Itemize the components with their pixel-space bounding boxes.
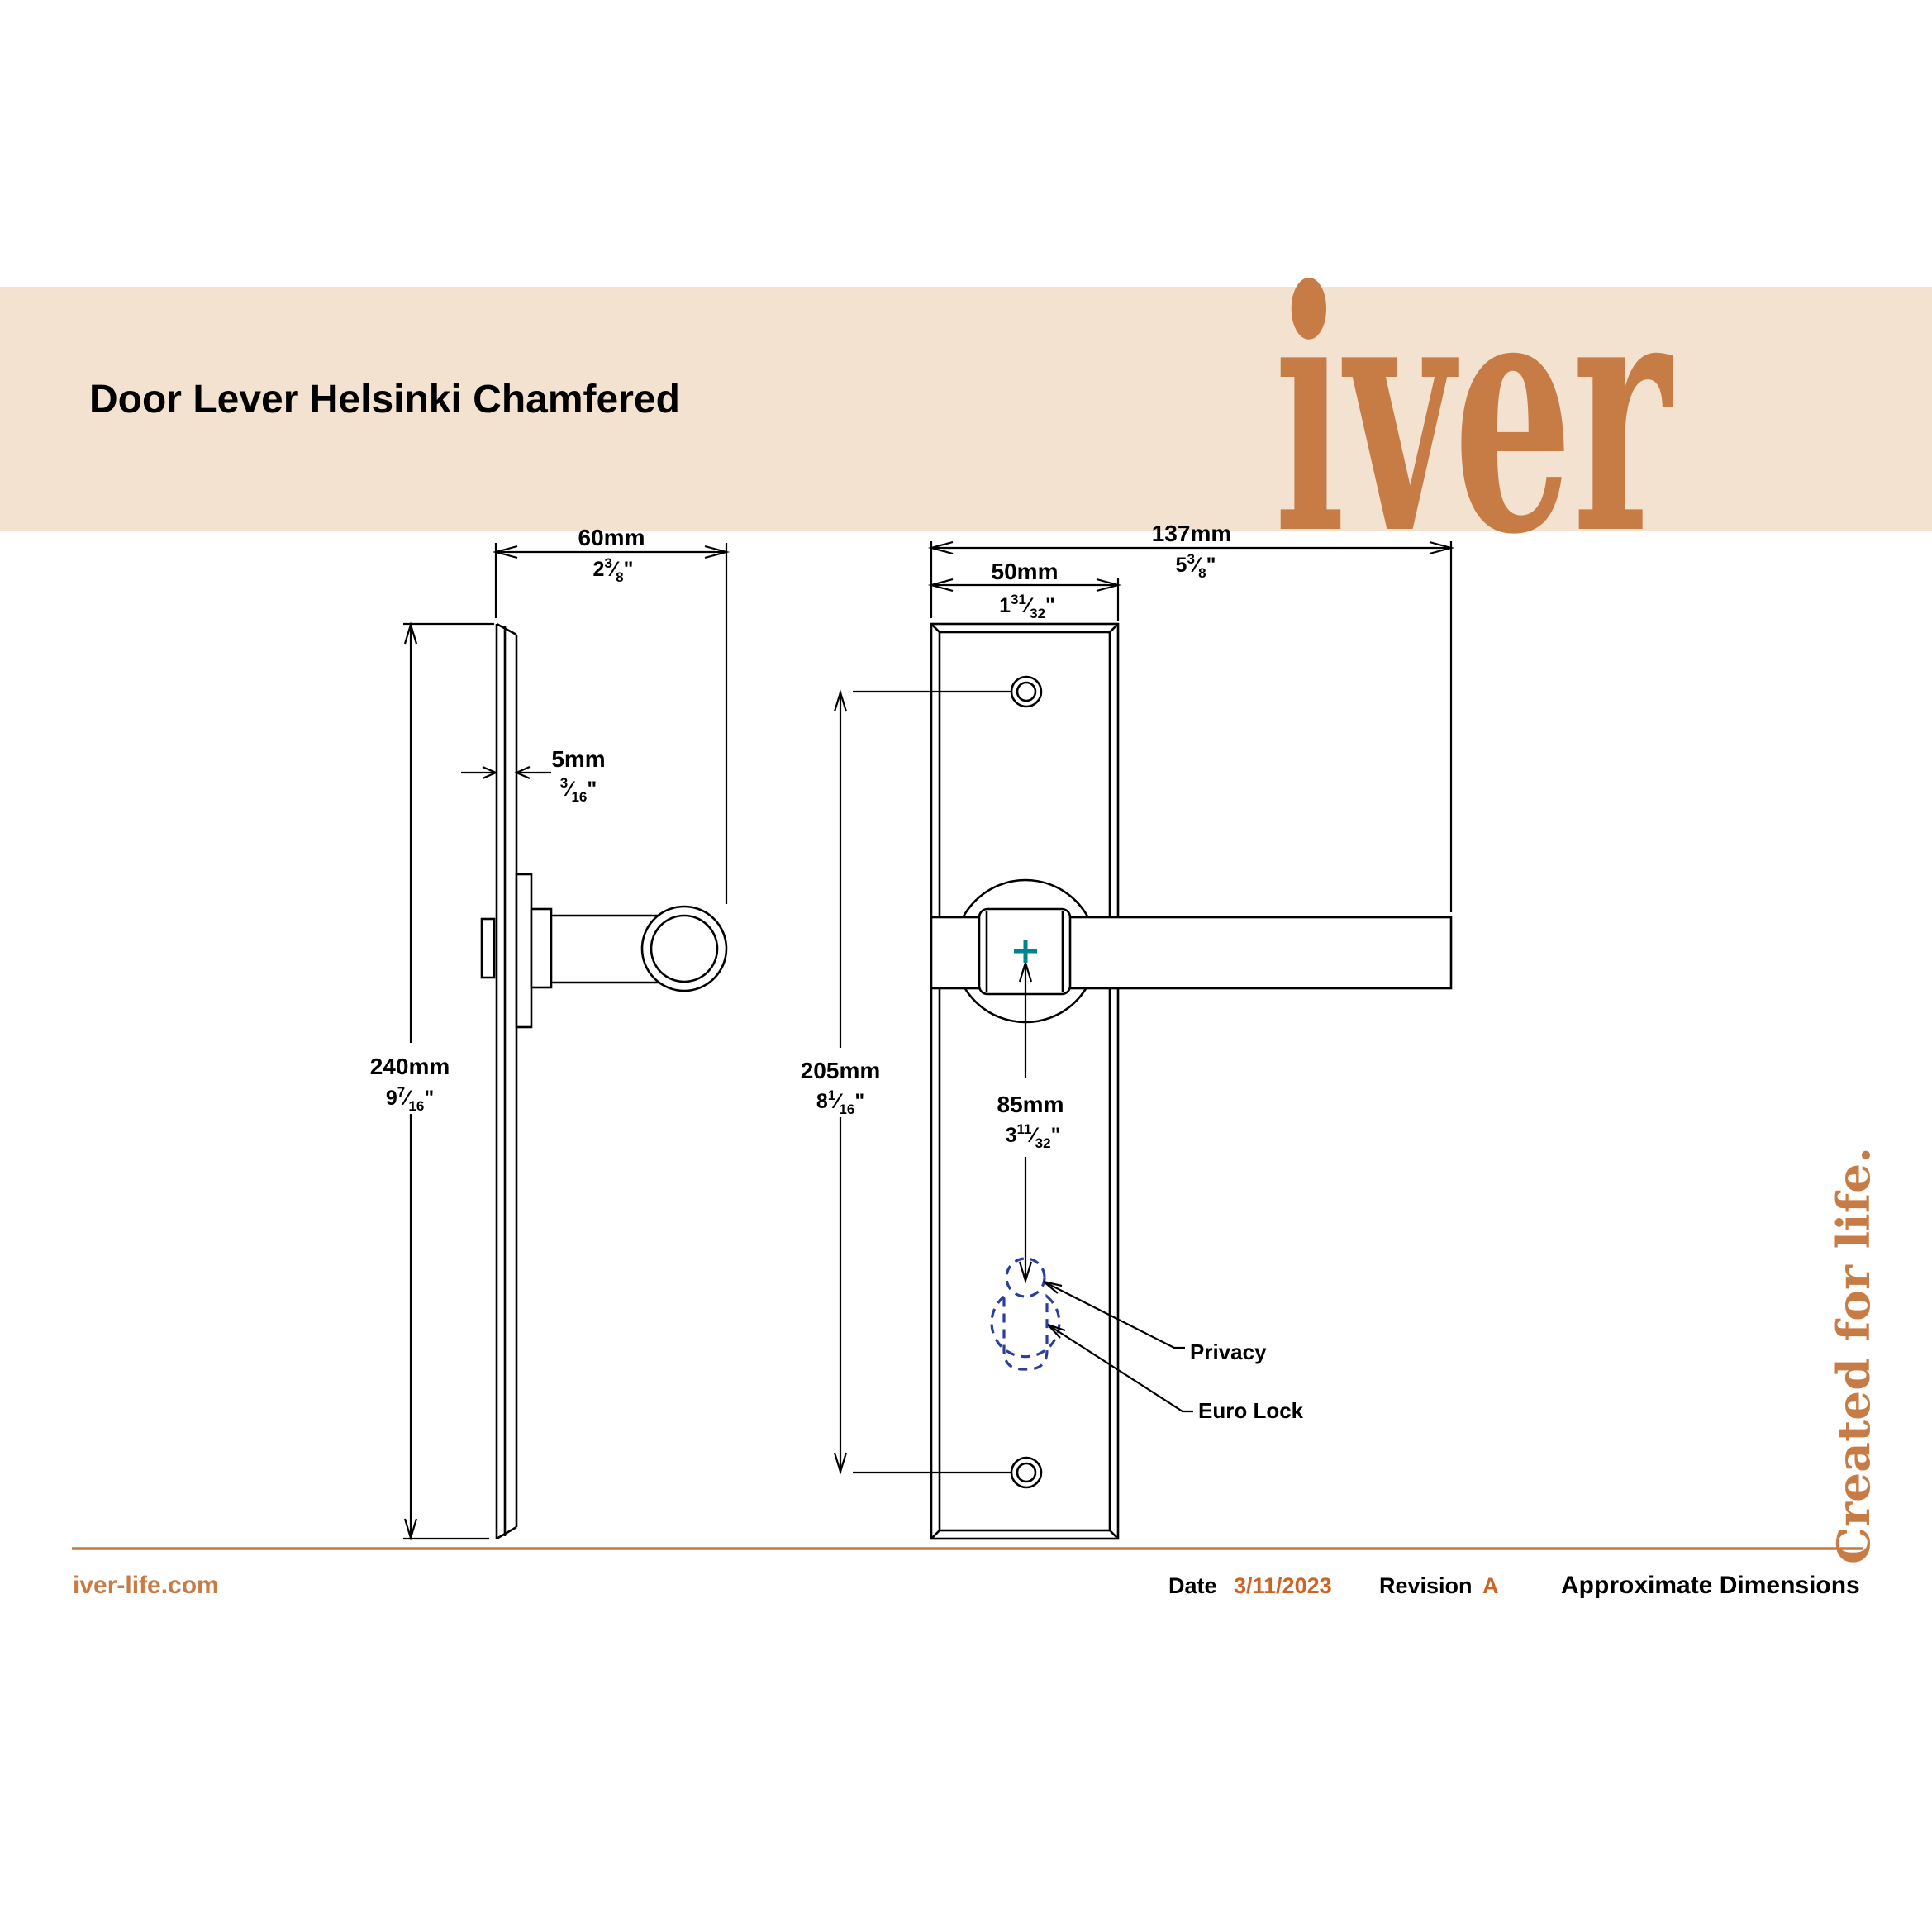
dim-240-in-whole: 9 bbox=[386, 1087, 397, 1110]
sideview-lever-neck bbox=[531, 909, 551, 987]
front-view bbox=[931, 624, 1451, 1539]
sideview-lever-end-outer bbox=[642, 907, 726, 991]
tagline-vertical: Created for life. bbox=[1827, 1147, 1880, 1564]
dim-85mm-label: 85mm bbox=[997, 1092, 1064, 1117]
dim-85-in-den: 32 bbox=[1035, 1135, 1051, 1151]
dim-240mm-inches: 97⁄16" bbox=[386, 1084, 434, 1114]
dim-60mm-inches: 23⁄8" bbox=[593, 555, 634, 585]
sideview-plate-top-chamfer bbox=[497, 624, 516, 635]
inch-mark: " bbox=[624, 558, 634, 581]
dim-60-in-den: 8 bbox=[616, 569, 623, 585]
dim-60-in-num: 3 bbox=[604, 555, 611, 571]
dim-50-in-whole: 1 bbox=[999, 594, 1011, 617]
dim-205-in-den: 16 bbox=[839, 1102, 854, 1117]
revision-label: Revision bbox=[1379, 1573, 1473, 1598]
sideview-dimensions bbox=[403, 543, 726, 1539]
dim-205-in-num: 1 bbox=[828, 1087, 835, 1103]
dim-137-in-num: 3 bbox=[1187, 551, 1194, 567]
dim-240mm-label: 240mm bbox=[370, 1054, 450, 1079]
brand-logo: iver bbox=[1274, 219, 1675, 607]
inch-mark: " bbox=[587, 778, 597, 801]
dim-5mm-label: 5mm bbox=[551, 746, 605, 772]
frontview-top-screw-outer bbox=[1011, 677, 1041, 707]
sideview-spindle-fixing bbox=[482, 919, 494, 978]
dim-85mm-inches: 311⁄32" bbox=[1006, 1121, 1061, 1151]
euro-lock-label: Euro Lock bbox=[1198, 1398, 1304, 1423]
dim-137-in-whole: 5 bbox=[1176, 554, 1187, 577]
dim-240-in-num: 7 bbox=[397, 1084, 405, 1100]
dim-240-in-den: 16 bbox=[408, 1098, 424, 1114]
dim-205-in-whole: 8 bbox=[816, 1090, 828, 1113]
dim-137mm-inches: 53⁄8" bbox=[1176, 551, 1216, 581]
privacy-label: Privacy bbox=[1190, 1340, 1267, 1364]
spec-sheet: Door Lever Helsinki Chamfered iver bbox=[0, 0, 1932, 1932]
date-value: 3/11/2023 bbox=[1234, 1573, 1332, 1598]
dim-85-in-whole: 3 bbox=[1006, 1124, 1017, 1147]
dim-85-in-num: 11 bbox=[1016, 1121, 1031, 1137]
dim-5mm-inches: 3⁄16" bbox=[560, 775, 597, 805]
frontview-plate-outer bbox=[931, 624, 1118, 1539]
revision-value: A bbox=[1482, 1573, 1499, 1598]
date-label: Date bbox=[1168, 1573, 1217, 1598]
inch-mark: " bbox=[424, 1087, 434, 1110]
page-title: Door Lever Helsinki Chamfered bbox=[89, 378, 680, 421]
approximate-dimensions-note: Approximate Dimensions bbox=[1561, 1572, 1860, 1599]
inch-mark: " bbox=[1206, 554, 1216, 577]
dim-50-in-den: 32 bbox=[1030, 606, 1045, 621]
frontview-bottom-screw-outer bbox=[1011, 1458, 1041, 1487]
dim-60mm-label: 60mm bbox=[578, 525, 645, 550]
sideview-rose bbox=[516, 874, 531, 1027]
inch-mark: " bbox=[1045, 594, 1055, 617]
dim-5-in-den: 16 bbox=[571, 789, 587, 805]
website-link[interactable]: iver-life.com bbox=[73, 1572, 219, 1599]
dim-205mm-label: 205mm bbox=[801, 1058, 881, 1083]
sideview-plate-bottom-chamfer bbox=[497, 1527, 516, 1539]
inch-mark: " bbox=[854, 1090, 864, 1113]
dim-50mm-inches: 131⁄32" bbox=[999, 592, 1055, 621]
dim-50mm-label: 50mm bbox=[992, 559, 1059, 584]
dim-137mm-label: 137mm bbox=[1152, 521, 1232, 546]
dim-5-in-num: 3 bbox=[560, 775, 568, 791]
dim-137-in-den: 8 bbox=[1198, 565, 1206, 581]
dim-50-in-num: 31 bbox=[1011, 592, 1026, 607]
inch-mark: " bbox=[1051, 1124, 1061, 1147]
dim-60-in-whole: 2 bbox=[593, 558, 605, 581]
dim-205mm-inches: 81⁄16" bbox=[816, 1087, 864, 1117]
